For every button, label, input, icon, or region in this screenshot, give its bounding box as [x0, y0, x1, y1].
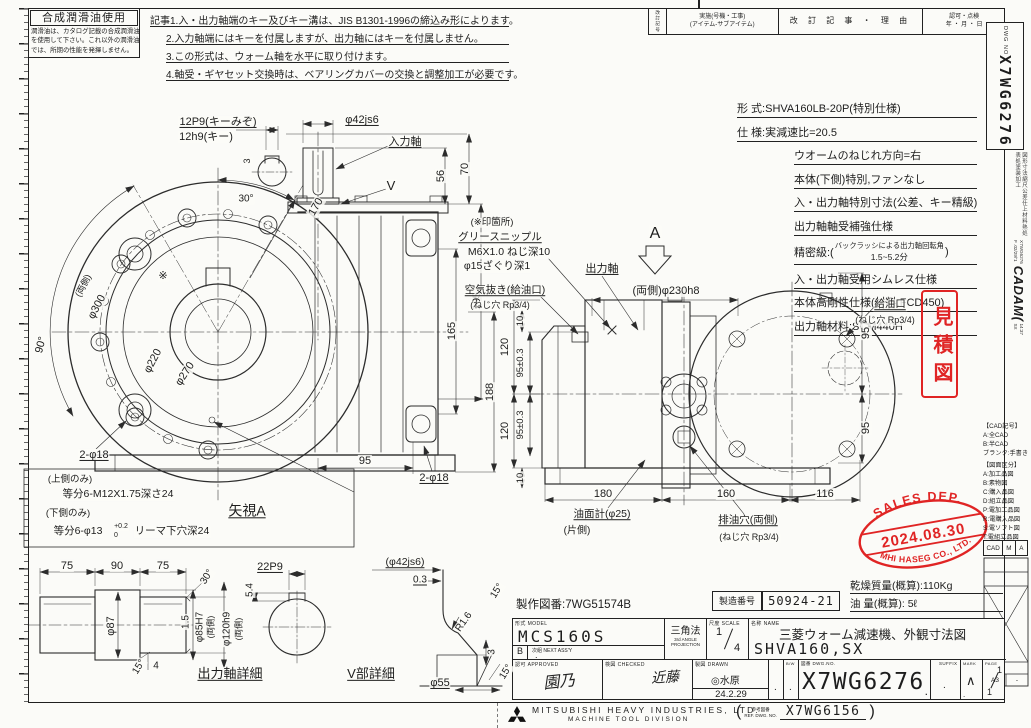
- scale-slash: [724, 629, 733, 650]
- scale-denominator: 4: [734, 642, 740, 654]
- small-cell-dot: .: [774, 682, 777, 693]
- svg-text:SALES DEP.: SALES DEP.: [869, 483, 966, 522]
- spec-line: 入・出力軸受用シムレス仕様: [794, 271, 977, 289]
- class-legend-item: B:素物図: [983, 480, 1030, 489]
- spec-precision-line2: 1.5~5.2分: [835, 251, 944, 263]
- mark-cell: MARK ∧ .: [961, 659, 983, 700]
- class-legend-title: 【図面区分】: [983, 462, 1030, 471]
- revision-exec-column: 実施(号機・工事) (アイテム-サブアイテム): [667, 8, 779, 34]
- cad-cell: M: [1003, 541, 1015, 555]
- ref-paren-open: (: [736, 703, 741, 721]
- dwg-dot: .: [925, 684, 928, 698]
- revision-date-label: 年 ・ 月 ・ 日: [946, 21, 983, 29]
- spec-model: 形 式:SHVA160LB-20P(特別仕様): [737, 100, 977, 118]
- checked-label: 検図 CHECKED: [605, 661, 645, 668]
- ref-paren-close: ): [869, 703, 874, 721]
- spec-line: ウオームのねじれ方向=右: [794, 147, 977, 165]
- sales-stamp-title: SALES DEP.: [869, 483, 966, 522]
- model-cell: 形式 MODEL MCS160S B 次組 NEXT ASS'Y .: [513, 619, 665, 659]
- detail-dimensions: [40, 568, 500, 690]
- small-cell-1: .: [769, 659, 784, 700]
- revision-symbol-column: 改訂記号: [649, 8, 667, 34]
- cad-legend-title: 【CAD記号】: [983, 423, 1030, 432]
- note-line-4: 4.軸受・ギヤセット交換時は、ベアリングカバーの交換と調整加工が必要です。: [166, 66, 509, 81]
- ref-dwg-group: ( 参考図番 REF. DWG. NO. X7WG6156 ): [736, 703, 875, 721]
- spec-precision-suffix: ): [945, 246, 949, 258]
- class-legend-item: C:購入品図: [983, 489, 1030, 498]
- drawn-signature: ◎水原: [711, 672, 740, 687]
- lubricant-line: では、所期の性能を発揮しません。: [31, 46, 137, 55]
- drawn-cell: 製図 DRAWN ◎水原 24.2.29: [693, 659, 769, 700]
- class-legend-item: R:電購入品図: [983, 516, 1030, 525]
- serial-no-value: 50924-21: [762, 591, 840, 611]
- dwg-no-main: X7WG6276: [802, 669, 925, 695]
- name-cell: 名称 NAME 三菱ウォーム減速機、外観寸法図 SHVA160,SX: [749, 619, 1006, 659]
- cadam-time: 14:37SX: [1013, 323, 1025, 335]
- lubricant-line: を使用して下さい。これ以外の潤滑油: [31, 36, 137, 45]
- note-line-2: 2.入力軸端にはキーを付属しますが、出力軸にはキーを付属しません。: [166, 30, 509, 45]
- mitsubishi-logo: [508, 706, 526, 723]
- scale-numerator: 1: [716, 626, 722, 638]
- spec-line: 入・出力軸特別寸法(公差、キー精級): [794, 194, 977, 212]
- cad-legend-item: A:全CAD: [983, 432, 1030, 441]
- detail-views: [28, 570, 502, 686]
- spec-precision-stack: バックラッシによる出力軸回転角 1.5~5.2分: [835, 241, 944, 263]
- drawn-date: 24.2.29: [693, 688, 769, 700]
- ref-label-stack: 参考図番 REF. DWG. NO.: [744, 707, 777, 718]
- approved-label: 認可 APPROVED: [515, 661, 559, 668]
- spec-precision-line1: バックラッシによる出力軸回転角: [835, 241, 944, 251]
- dwg-no-label: DWG NO: [1002, 26, 1008, 55]
- cadam-logo: CADAM(: [1011, 266, 1026, 322]
- approved-cell: 認可 APPROVED 園乃: [513, 659, 603, 700]
- division-name: MACHINE TOOL DIVISION: [568, 716, 689, 723]
- dwg-no-value: X7WG6276: [996, 55, 1014, 147]
- dwg-no-box: DWG NO X7WG6276: [986, 22, 1024, 150]
- approved-signature: 園乃: [542, 666, 576, 693]
- class-legend-item: D:組立品図: [983, 498, 1030, 507]
- spec-precision: 精密級:( バックラッシによる出力軸回転角 1.5~5.2分 ): [794, 241, 977, 265]
- spec-precision-prefix: 精密級:(: [794, 244, 834, 260]
- title-block-table: 形式 MODEL MCS160S B 次組 NEXT ASS'Y . 三角法 3…: [512, 618, 1005, 700]
- note-line-1: 記事1.入・出力軸端のキー及びキー溝は、JIS B1301-1996の締込み形に…: [150, 12, 509, 27]
- lubricant-body: 潤滑油は、カタログ記載の合成潤滑油 を使用して下さい。これ以外の潤滑油 では、所…: [29, 26, 139, 56]
- estimate-stamp: 見積図: [921, 290, 958, 398]
- revision-history-column: 改 訂 記 事 ・ 理 由: [779, 8, 924, 34]
- scale-cell: 尺度 SCALE 1 4: [707, 619, 749, 659]
- model-label: 形式 MODEL: [515, 620, 547, 627]
- bw-label: B/W: [786, 661, 795, 666]
- sales-stamp: SALES DEP. 2024.08.30 MHI HASEG CO., LTD…: [852, 480, 991, 576]
- cad-cell: A: [1016, 541, 1027, 555]
- next-assy-label: 次組 NEXT ASS'Y: [532, 647, 572, 654]
- dwg-no-cell: 図番 DWG.NO. X7WG6276 .: [799, 659, 931, 700]
- lubricant-title: 合成潤滑油使用: [30, 10, 138, 26]
- lubricant-line: 潤滑油は、カタログ記載の合成潤滑油: [31, 27, 137, 36]
- scale-label: 尺度 SCALE: [709, 620, 740, 627]
- small-cell-dot: .: [789, 682, 792, 693]
- ref-label-en: REF. DWG. NO.: [744, 713, 777, 718]
- revision-approve-label: 認可・点検: [949, 13, 979, 21]
- class-legend-item: S:電ソフト図: [983, 525, 1030, 534]
- mark-dot: .: [963, 690, 965, 699]
- cad-legend-item: ブランク:手書き: [983, 450, 1030, 459]
- paper-size-cell: A3: [984, 674, 1006, 686]
- checked-signature: 近藤: [650, 666, 679, 688]
- next-assy-row: B 次組 NEXT ASS'Y .: [513, 645, 665, 659]
- suffix-label: SUFFIX: [939, 661, 957, 666]
- cadam-dwg-no: X7WG6276F .02/29/'1: [1013, 240, 1025, 264]
- margin-kanji-column: 図形寸法縮尺公差仕上材料熱処表処塗装加工: [1003, 152, 1027, 240]
- mark-value: ∧: [966, 673, 976, 689]
- dwg-label: 図番 DWG.NO.: [801, 661, 836, 667]
- production-dwg-no: 製作図番:7WG51574B: [516, 596, 631, 612]
- suffix-value: .: [943, 680, 946, 691]
- page-label: PAGE: [985, 661, 997, 666]
- page-bottom: 1: [987, 687, 992, 697]
- class-legend-item: P:電加工品図: [983, 507, 1030, 516]
- spec-line: 出力軸軸受補強仕様: [794, 218, 977, 236]
- projection-en2: PROJECTION: [665, 642, 706, 647]
- cad-legend: 【CAD記号】 A:全CAD B:半CAD ブランク:手書き 【図面区分】 A:…: [983, 420, 1030, 543]
- name-label: 名称 NAME: [751, 620, 780, 627]
- dry-mass: 乾燥質量(概算):110Kg: [850, 578, 1003, 594]
- cadam-stamp: X7WG6276F .02/29/'1 CADAM( 14:37SX: [1011, 240, 1026, 335]
- mark-label: MARK: [963, 661, 976, 666]
- technical-drawing-sheet: 合成潤滑油使用 潤滑油は、カタログ記載の合成潤滑油 を使用して下さい。これ以外の…: [0, 0, 1031, 728]
- company-name: MITSUBISHI HEAVY INDUSTRIES, LTD.: [532, 705, 760, 715]
- cad-cells-row: CAD M A: [983, 540, 1028, 556]
- b-mark: B: [513, 646, 528, 660]
- company-strip: MITSUBISHI HEAVY INDUSTRIES, LTD. MACHIN…: [496, 703, 1016, 727]
- note-line-3: 3.この形式は、ウォーム軸を水平に取り付けます。: [166, 48, 509, 63]
- class-legend-item: A:加工品図: [983, 471, 1030, 480]
- title-block: 乾燥質量(概算):110Kg 油 量(概算): 5ℓ 製作図番:7WG51574…: [512, 575, 1005, 728]
- revision-exec-line2: (アイテム-サブアイテム): [690, 21, 755, 29]
- ref-dwg-no: X7WG6156: [780, 704, 867, 720]
- scale-dash-cell: -: [1006, 674, 1028, 686]
- cad-legend-item: B:半CAD: [983, 441, 1030, 450]
- revision-exec-line1: 実施(号機・工事): [699, 13, 745, 21]
- suffix-cell: SUFFIX .: [931, 659, 961, 700]
- projection-jp: 三角法: [665, 622, 706, 637]
- spec-line: 仕 様:実減速比=20.5: [737, 124, 977, 142]
- projection-cell: 三角法 3rd ANGLE PROJECTION: [665, 619, 707, 659]
- cad-cell: CAD: [984, 541, 1003, 555]
- oil-volume: 油 量(概算): 5ℓ: [850, 596, 1003, 612]
- serial-no-label: 製造番号: [712, 591, 762, 611]
- spec-line: 本体(下側)特別,ファンなし: [794, 171, 977, 189]
- front-view-dimensions: [24, 120, 496, 547]
- model-code: SHVA160,SX: [754, 640, 864, 658]
- lubricant-note-box: 合成潤滑油使用 潤滑油は、カタログ記載の合成潤滑油 を使用して下さい。これ以外の…: [28, 8, 140, 58]
- model-value: MCS160S: [518, 627, 606, 646]
- drawn-label: 製図 DRAWN: [695, 661, 728, 668]
- small-cell-2: B/W .: [784, 659, 799, 700]
- checked-cell: 検図 CHECKED 近藤: [603, 659, 693, 700]
- revision-table-header: 改訂記号 実施(号機・工事) (アイテム-サブアイテム) 改 訂 記 事 ・ 理…: [648, 8, 1005, 35]
